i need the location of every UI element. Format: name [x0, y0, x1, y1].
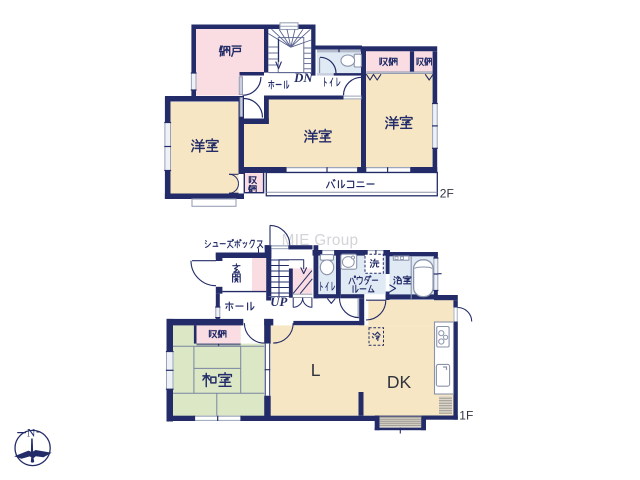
svg-text:DN: DN	[293, 71, 313, 85]
svg-text:UP: UP	[270, 295, 287, 309]
svg-text:DK: DK	[387, 372, 412, 392]
svg-text:L: L	[311, 360, 321, 380]
svg-text:2F: 2F	[440, 186, 454, 200]
svg-text:1F: 1F	[459, 408, 473, 422]
svg-text:N: N	[27, 425, 36, 439]
